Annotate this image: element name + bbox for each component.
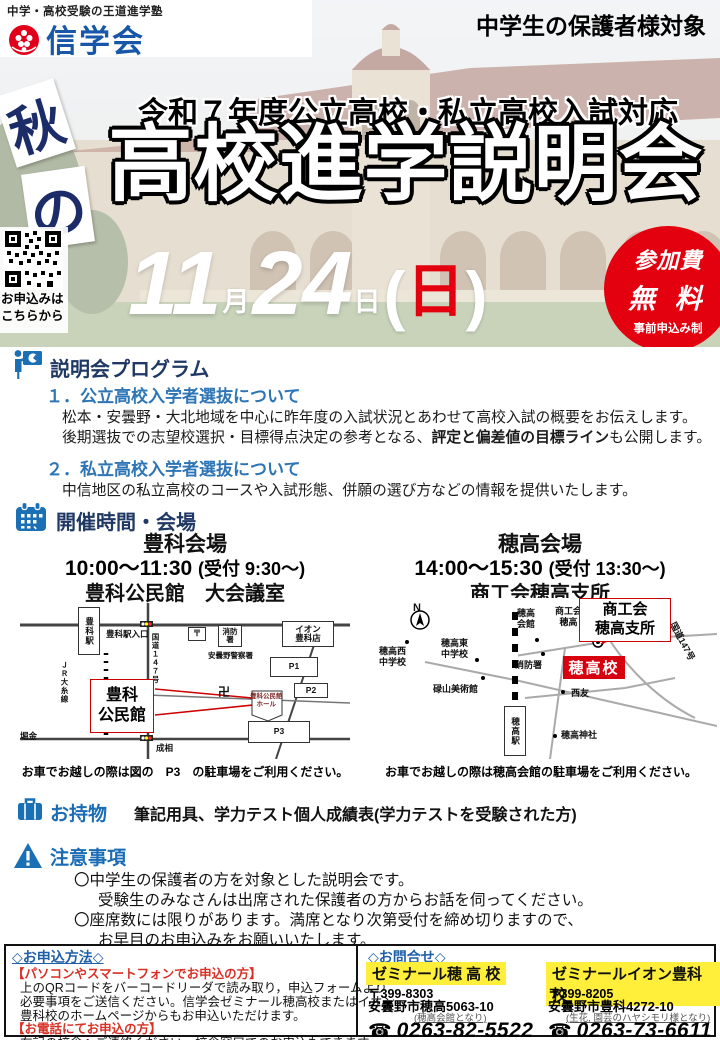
- line2-pre: 後期選抜での志望校選択・目標得点決定の参考となる、: [62, 430, 431, 446]
- phone-icon: ☎: [368, 1020, 392, 1040]
- belongings-heading: お持物: [50, 799, 107, 826]
- venue-2-reception: (受付 13:30～): [549, 559, 666, 579]
- map-fire-station: 消防 署: [218, 625, 242, 647]
- date-day: 24: [252, 243, 352, 326]
- map-jr-line-label: ＪＲ大糸線: [60, 661, 69, 704]
- map-toyoshina-station: 豊科駅: [78, 607, 100, 655]
- belongings-text: 筆記用具、学力テスト個人成績表(学力テストを受験された方): [134, 801, 577, 825]
- fee-badge: 参加費 無 料 事前申込み制: [604, 226, 720, 347]
- event-date: 11 月 24 日 ( 日 ): [128, 230, 488, 326]
- line2-post: も公開します。: [609, 430, 711, 446]
- map-higashi-jhs: 穂高東 中学校: [441, 638, 468, 660]
- program-item-1-title: １．公立高校入学者選抜について: [46, 382, 301, 407]
- map-parking-p3: P3: [248, 721, 310, 743]
- date-day-unit: 日: [354, 280, 381, 319]
- map-aeon: イオン 豊科店: [282, 621, 334, 647]
- fee-line2: 無 料: [604, 277, 720, 316]
- phone-icon: ☎: [548, 1020, 572, 1040]
- map-seiyu: 西友: [571, 688, 589, 699]
- fee-line1: 参加費: [604, 243, 720, 275]
- audience-label: 中学生の保護者様対象: [476, 7, 706, 41]
- note-line-2: 受験生のみなさんは出席された保護者の方からお話を伺ってください。: [98, 888, 593, 910]
- flyer-page: 中学・高校受験の王道進学塾 信学会 中学生の保護者様対象 秋 の 令和７年度公立…: [0, 0, 720, 1040]
- date-paren-open: (: [384, 267, 406, 323]
- office-2-tel-number: 0263-73-6611: [577, 1019, 712, 1040]
- map-post-office: 〒: [188, 627, 206, 641]
- office-2-tel: ☎ 0263-73-6611: [548, 1019, 712, 1040]
- note-line-1: 〇中学生の保護者の方を対象とした説明会です。: [74, 868, 413, 890]
- map-shrine: 穂高神社: [561, 730, 597, 741]
- hero-banner: 中学・高校受験の王道進学塾 信学会 中学生の保護者様対象 秋 の 令和７年度公立…: [0, 0, 720, 347]
- fee-line3: 事前申込み制: [604, 320, 720, 336]
- venue-1-reception: (受付 9:30～): [198, 559, 305, 579]
- logo-panel: 中学・高校受験の王道進学塾 信学会: [0, 0, 312, 57]
- program-icon: [12, 348, 44, 380]
- date-month-unit: 月: [222, 280, 249, 319]
- map-hotaka-station: 穂高駅: [504, 706, 526, 756]
- map-parking-p1: P1: [270, 657, 318, 677]
- hero-title: 高校進学説明会: [94, 120, 718, 208]
- bag-icon: [16, 795, 44, 823]
- program-item-1-line1: 松本・安曇野・大北地域を中心に昨年度の入試状況とあわせて高校入試の概要をお伝えし…: [62, 406, 697, 427]
- hotaka-map-caption: お車でお越しの際は穂高会館の駐車場をご利用ください。: [365, 763, 717, 780]
- map-kaikan: 穂高 会館: [517, 608, 535, 630]
- office-1-name: ゼミナール穂 高 校: [366, 962, 506, 985]
- map-narisai-label: 成相: [156, 743, 173, 753]
- map-hotaka-school: 穂高校: [563, 656, 625, 679]
- brand-name: 信学会: [46, 16, 145, 61]
- program-item-2-title: ２．私立高校入学者選抜について: [46, 455, 301, 480]
- map-nishi-jhs: 穂高西 中学校: [379, 646, 406, 668]
- shingakukai-emblem-icon: [6, 21, 42, 57]
- qr-caption: お申込みは こちらから: [1, 291, 67, 325]
- line2-bold: 評定と偏差値の目標ライン: [431, 430, 609, 446]
- map-parking-p2: P2: [294, 683, 328, 698]
- map-temple-mark: 卍: [218, 685, 230, 699]
- notes-heading: 注意事項: [50, 843, 126, 870]
- warning-icon: [12, 841, 44, 871]
- qr-code: [3, 229, 63, 289]
- venue-1-place: 豊科公民館 大会議室: [20, 577, 350, 606]
- toyoshina-map: 豊科駅 ＪＲ大糸線 国道１４７号 豊科駅入口 〒 消防 署 安曇野警察署 イオン…: [20, 603, 350, 759]
- office-1-tel-number: 0263-82-5522: [397, 1019, 534, 1040]
- map-toyoshina-callout: 豊科 公民館: [90, 679, 154, 733]
- qr-panel: お申込みは こちらから: [0, 227, 68, 333]
- program-item-2-line1: 中信地区の私立高校のコースや入試形態、併願の選び方などの情報を提供いたします。: [62, 479, 637, 500]
- map-route147-label: 国道１４７号: [151, 633, 160, 684]
- map-hotaka-fire: 消防署: [515, 660, 542, 671]
- map-north-label: N: [413, 602, 421, 615]
- program-heading: 説明会プログラム: [50, 353, 209, 382]
- map-hotaka-callout: 商工会 穂高支所: [579, 598, 671, 642]
- map-horikane-label: 堀金: [20, 731, 37, 741]
- program-item-1-line2: 後期選抜での志望校選択・目標得点決定の参考となる、評定と偏差値の目標ラインも公開…: [62, 426, 711, 447]
- date-weekday: 日: [407, 266, 465, 318]
- toyoshina-map-caption: お車でお越しの際は図の P3 の駐車場をご利用ください。: [20, 763, 350, 780]
- date-month: 11: [128, 243, 221, 326]
- hotaka-map: N 穂高西 中学校 穂高東 中学校 碌山美術館 穂高 会館 商工会 穂高 消防署…: [365, 598, 717, 759]
- map-hall-note: 豊科公民館 ホール: [250, 693, 283, 709]
- map-police-label: 安曇野警察署: [208, 651, 253, 660]
- map-shokokai: 商工会 穂高: [555, 606, 582, 628]
- note-line-3: 〇座席数には限りがあります。満席となり次第受付を締め切りますので、: [74, 908, 583, 930]
- date-paren-close: ): [466, 267, 488, 323]
- map-station-entrance-label: 豊科駅入口: [106, 629, 149, 639]
- office-1-tel: ☎ 0263-82-5522: [368, 1019, 533, 1040]
- map-rokuzan-museum: 碌山美術館: [433, 684, 478, 695]
- apply-tel-line: 右記の校舎へご連絡ください。校舎窓口でのお申込もできます。: [20, 1032, 381, 1040]
